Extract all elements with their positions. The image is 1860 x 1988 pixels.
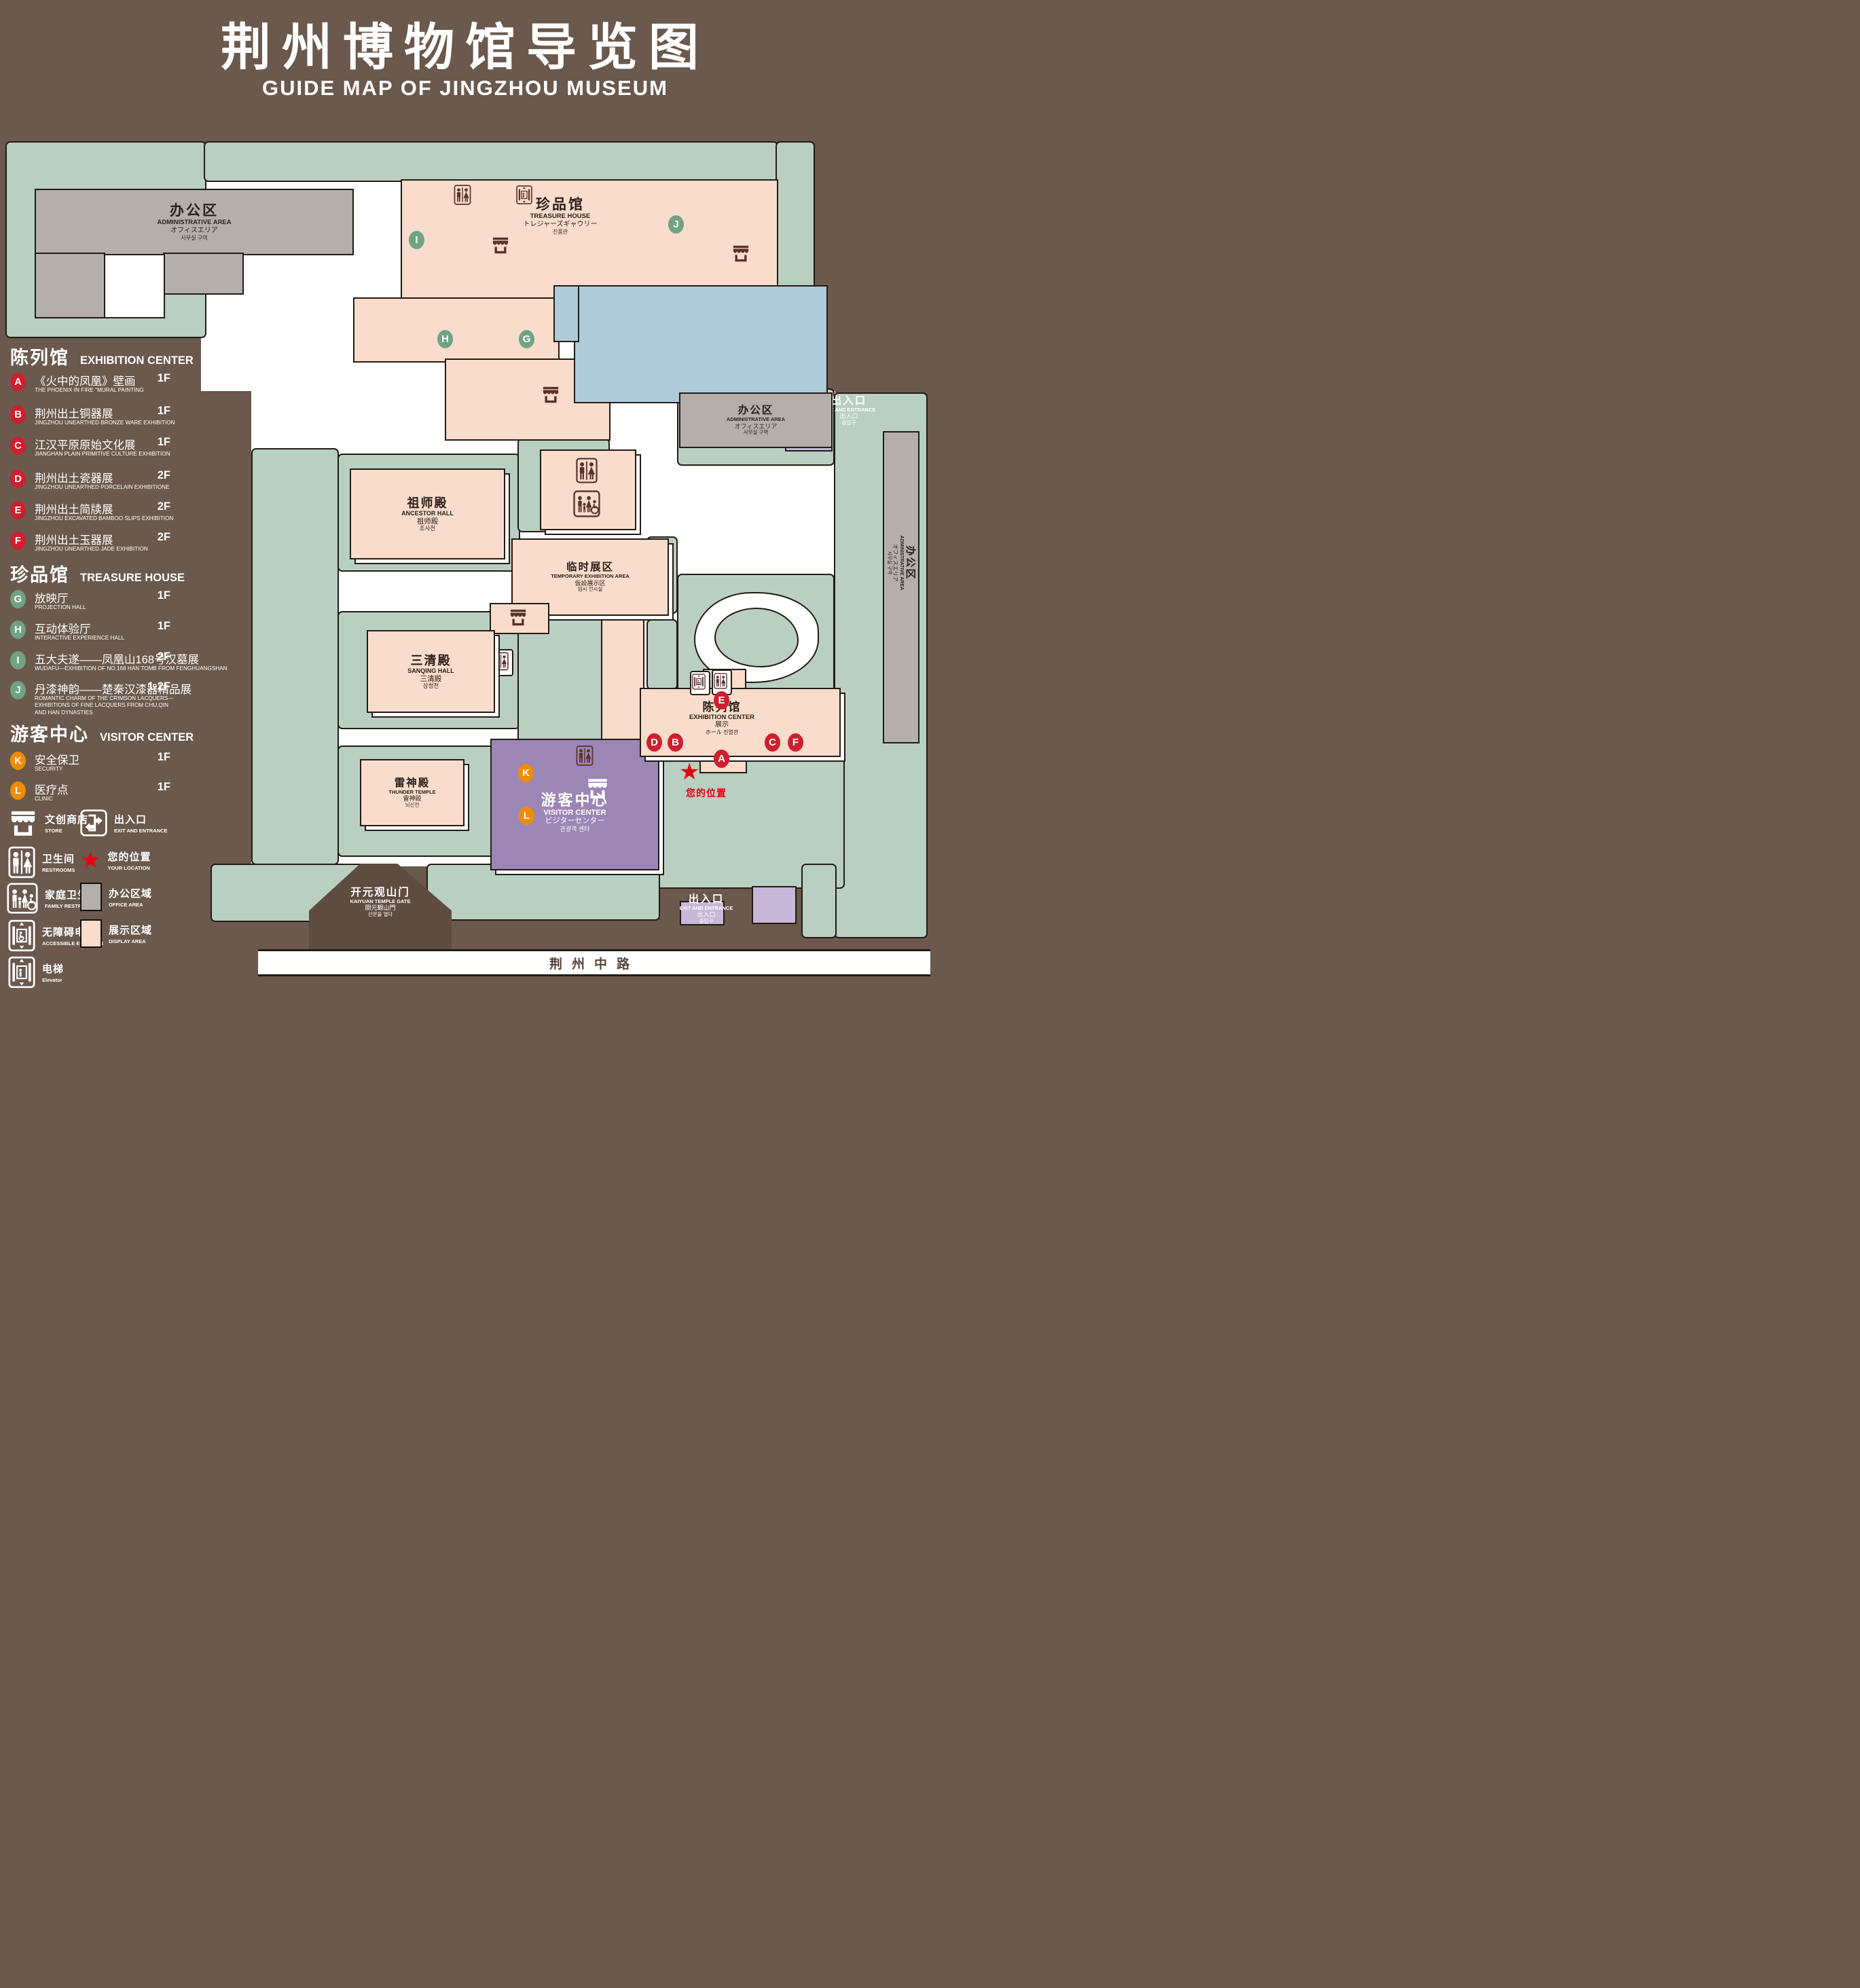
restroom-icon: [454, 185, 471, 205]
map-marker-K: K: [518, 764, 534, 782]
legend-symbol-store: 文创商店STORE: [8, 809, 88, 836]
lawn-small-2: [646, 619, 678, 690]
map-marker-I: I: [409, 231, 424, 249]
kaiyuan-gate-label: 开元观山门 KAIYUAN TEMPLE GATE 開元観山門 산문을 열다: [316, 887, 445, 917]
road-label: 荆州中路: [549, 954, 639, 972]
map-marker-F: F: [788, 733, 803, 752]
legend-symbol-exit: 出入口EXIT AND ENTRANCE: [80, 809, 167, 836]
badge-I: I: [10, 651, 26, 669]
family-restroom-icon: [7, 883, 38, 914]
badge-F: F: [10, 532, 26, 550]
store-icon: [490, 236, 511, 254]
office-area-swatch: [80, 883, 102, 911]
store-icon: [731, 244, 751, 262]
building-ancestor-hall: 祖师殿 ANCESTOR HALL 祖师殿 조사전: [350, 468, 505, 559]
elevator-icon: [8, 956, 35, 989]
exit-icon: [80, 809, 107, 836]
admin-top-left-label: 办公区 ADMINISTRATIVE AREA オフィスエリア 사무실 구역: [36, 190, 352, 254]
lawn-mid-left-column: [251, 448, 339, 865]
road: 荆州中路: [258, 949, 930, 976]
building-admin-right: 办公区 ADMINISTRATIVE AREA オフィスエリア 사무실 구역: [679, 392, 833, 448]
accessible-elevator-icon: [8, 919, 35, 952]
legend-item-G: G 放映厅 1F PROJECTION HALL: [10, 589, 166, 619]
legend-symbol-restrooms: 卫生间RESTROOMS: [8, 846, 75, 879]
badge-C: C: [10, 437, 26, 455]
page-subtitle: GUIDE MAP OF JINGZHOU MUSEUM: [0, 76, 930, 100]
map-marker-L: L: [519, 807, 534, 825]
admin-far-right-label: 办公区 ADMINISTRATIVE AREA オフィスエリア 사무실 구역: [886, 535, 916, 590]
park-island: [714, 608, 799, 667]
badge-G: G: [10, 590, 26, 608]
store-icon: [8, 809, 38, 836]
building-admin-top-left: 办公区 ADMINISTRATIVE AREA オフィスエリア 사무실 구역: [35, 189, 354, 255]
building-visitor-center: 游客中心 VISITOR CENTER ビジターセンター 관광객 센터: [490, 739, 659, 870]
building-sanqing-hall: 三清殿 SANQING HALL 三清殿 삼청전: [367, 630, 495, 713]
ancestor-hall-label: 祖师殿 ANCESTOR HALL 祖师殿 조사전: [351, 470, 504, 558]
gate-block: [752, 886, 797, 924]
building-admin-far-right: 办公区 ADMINISTRATIVE AREA オフィスエリア 사무실 구역: [883, 431, 919, 743]
map-marker-G: G: [519, 330, 534, 348]
map-marker-D: D: [646, 733, 662, 752]
badge-K: K: [10, 752, 26, 770]
lawn-bottom-right: [801, 864, 837, 938]
badge-J: J: [10, 681, 26, 699]
legend-item-K: K 安全保卫 1F SECURITY: [10, 751, 166, 781]
restroom-icon: [576, 745, 594, 766]
legend-item-F: F 荆州出土玉器展 2F JINGZHOU UNEARTHED JADE EXH…: [10, 531, 166, 561]
map-marker-B: B: [668, 733, 683, 752]
legend-item-H: H 互动体验厅 1F INTERACTIVE EXPERIENCE HALL: [10, 620, 166, 650]
guide-map-poster: 荆州博物馆导览图 GUIDE MAP OF JINGZHOU MUSEUM 办公…: [0, 0, 930, 994]
family-restroom-icon: [573, 490, 600, 517]
map-marker-C: C: [765, 733, 780, 752]
visitor-center-label: 游客中心 VISITOR CENTER ビジターセンター 관광객 센터: [492, 740, 658, 869]
admin-right-label: 办公区 ADMINISTRATIVE AREA オフィスエリア 사무실 구역: [680, 394, 831, 447]
legend-section-exhibition: 陈列馆 EXHIBITION CENTER: [10, 343, 194, 369]
legend-item-B: B 荆州出土铜器展 1F JINGZHOU UNEARTHED BRONZE W…: [10, 405, 166, 435]
lawn-bottom-mid: [426, 864, 660, 921]
legend-item-L: L 医疗点 1F CLINIC: [10, 781, 166, 811]
map-marker-A: A: [714, 750, 729, 768]
building-admin-top-left-stub: [163, 253, 244, 295]
treasure-house-label: 珍品馆 TREASURE HOUSE トレジャーズギャウリー 진품관: [435, 197, 686, 235]
badge-L: L: [10, 781, 26, 800]
map-marker-E: E: [714, 691, 729, 710]
store-icon: [541, 386, 561, 403]
your-location-label: 您的位置: [669, 786, 744, 800]
thunder-temple-label: 雷神殿 THUNDER TEMPLE 雷神殿 뇌신전: [361, 760, 463, 825]
admin-courtyard: [104, 254, 165, 318]
page-title: 荆州博物馆导览图: [0, 7, 930, 79]
location-star-icon: ★: [80, 849, 101, 872]
legend-symbol-office-area: 办公区域OFFICE AREA: [80, 883, 152, 911]
lawn-top-band: [204, 141, 778, 182]
legend-item-J: J 丹漆神韵——楚秦汉漆器精品展 1-2F ROMANTIC CHARM OF …: [10, 680, 166, 710]
location-star-icon: ★: [679, 760, 699, 784]
badge-H: H: [10, 621, 26, 639]
legend-symbol-elevator: 电梯Elevator: [8, 956, 64, 989]
legend-item-E: E 荆州出土简牍展 2F JINGZHOU EXCAVATED BAMBOO S…: [10, 500, 166, 530]
map-marker-J: J: [668, 215, 684, 234]
legend-item-A: A 《火中的凤凰》壁画 1F THE PHOENIX IN FIRE "MURA…: [10, 372, 166, 402]
restroom-icon: [714, 672, 727, 690]
map-marker-H: H: [437, 330, 453, 348]
badge-D: D: [10, 470, 26, 488]
display-area-swatch: [80, 919, 102, 948]
badge-E: E: [10, 501, 26, 519]
badge-B: B: [10, 405, 26, 424]
accessible-elevator-icon: [692, 673, 706, 691]
legend-item-D: D 荆州出土瓷器展 2F JINGZHOU UNEARTHED PORCELAI…: [10, 469, 166, 499]
building-admin-top-left-wing: [35, 253, 105, 318]
legend-section-treasure: 珍品馆 TREASURE HOUSE: [10, 560, 185, 587]
badge-A: A: [10, 373, 26, 391]
legend-section-visitor: 游客中心 VISITOR CENTER: [10, 720, 194, 746]
elevator-icon: [516, 185, 532, 205]
legend-symbol-display-area: 展示区域DISPLAY AREA: [80, 919, 152, 948]
building-thunder-temple: 雷神殿 THUNDER TEMPLE 雷神殿 뇌신전: [360, 759, 464, 826]
legend-symbol-your-location: ★ 您的位置YOUR LOCATION: [80, 849, 151, 872]
sanqing-hall-label: 三清殿 SANQING HALL 三清殿 삼청전: [368, 631, 494, 712]
legend-item-I: I 五大夫遂——凤凰山168号汉墓展 2F WUDAFU—EXHIBITION …: [10, 650, 166, 680]
restroom-icon: [493, 652, 509, 671]
restroom-icon: [8, 846, 35, 879]
store-icon: [585, 777, 610, 799]
exit-bottom-label: 出入口 EXIT AND ENTRANCE 出入口 출입구: [662, 894, 750, 924]
store-icon: [509, 608, 528, 626]
legend-item-C: C 江汉平原原始文化展 1F JIANGHAN PLAIN PRIMITIVE …: [10, 436, 166, 466]
pond: [574, 285, 828, 403]
pond-arm: [553, 285, 579, 342]
restroom-icon: [576, 458, 598, 483]
